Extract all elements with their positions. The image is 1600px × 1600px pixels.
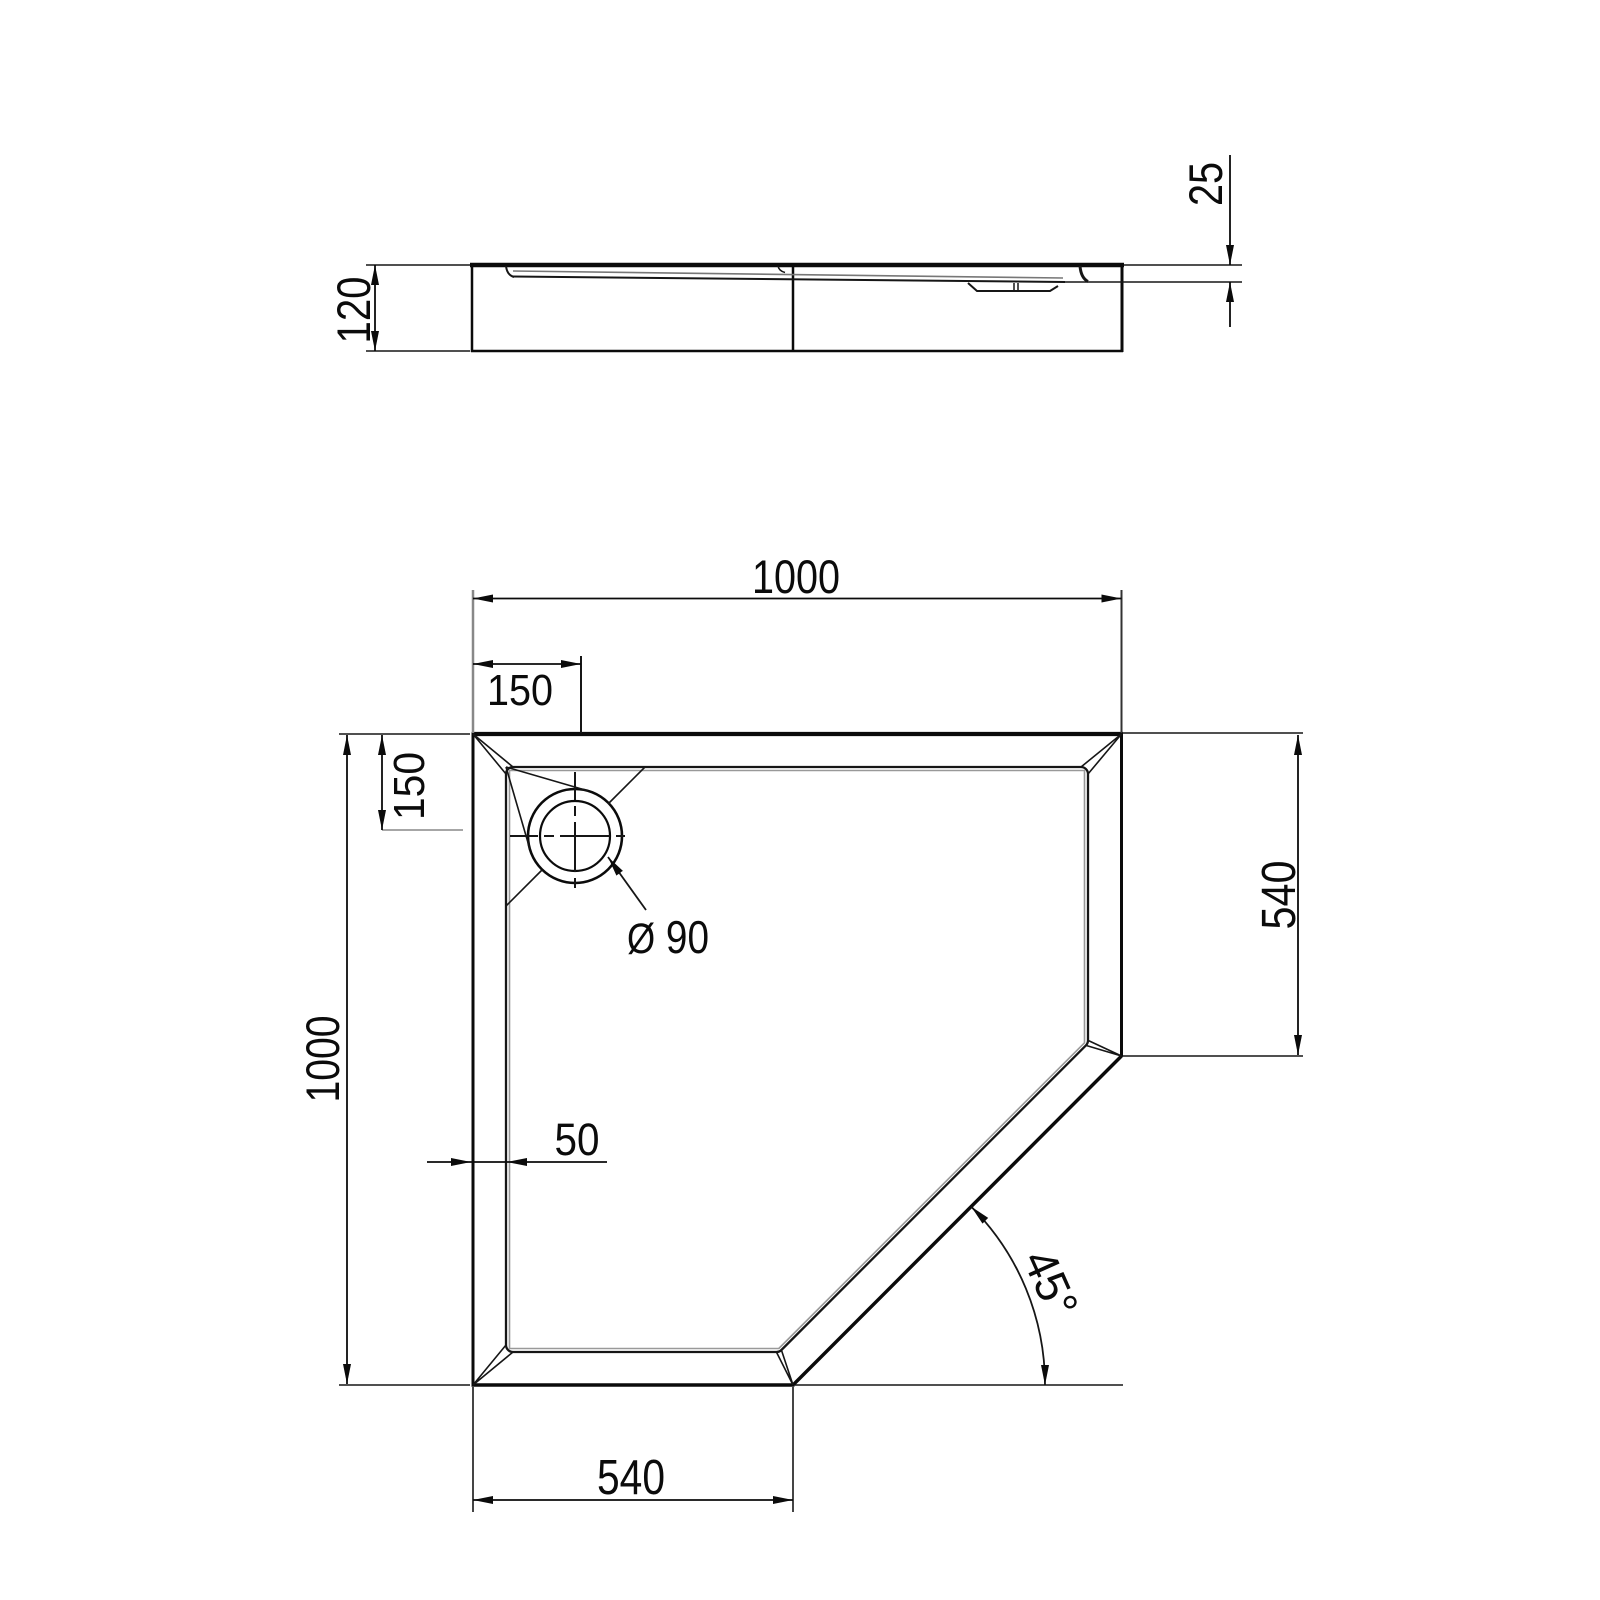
svg-text:1000: 1000 [296,1016,349,1103]
svg-text:50: 50 [555,1114,600,1165]
svg-text:540: 540 [597,1451,665,1505]
svg-text:Ø 90: Ø 90 [627,911,709,963]
svg-text:45°: 45° [1013,1241,1089,1325]
svg-text:540: 540 [1253,861,1306,930]
svg-text:150: 150 [487,666,553,715]
svg-text:120: 120 [327,277,380,344]
svg-text:150: 150 [385,752,434,820]
svg-text:25: 25 [1179,162,1232,206]
svg-text:1000: 1000 [752,550,840,603]
